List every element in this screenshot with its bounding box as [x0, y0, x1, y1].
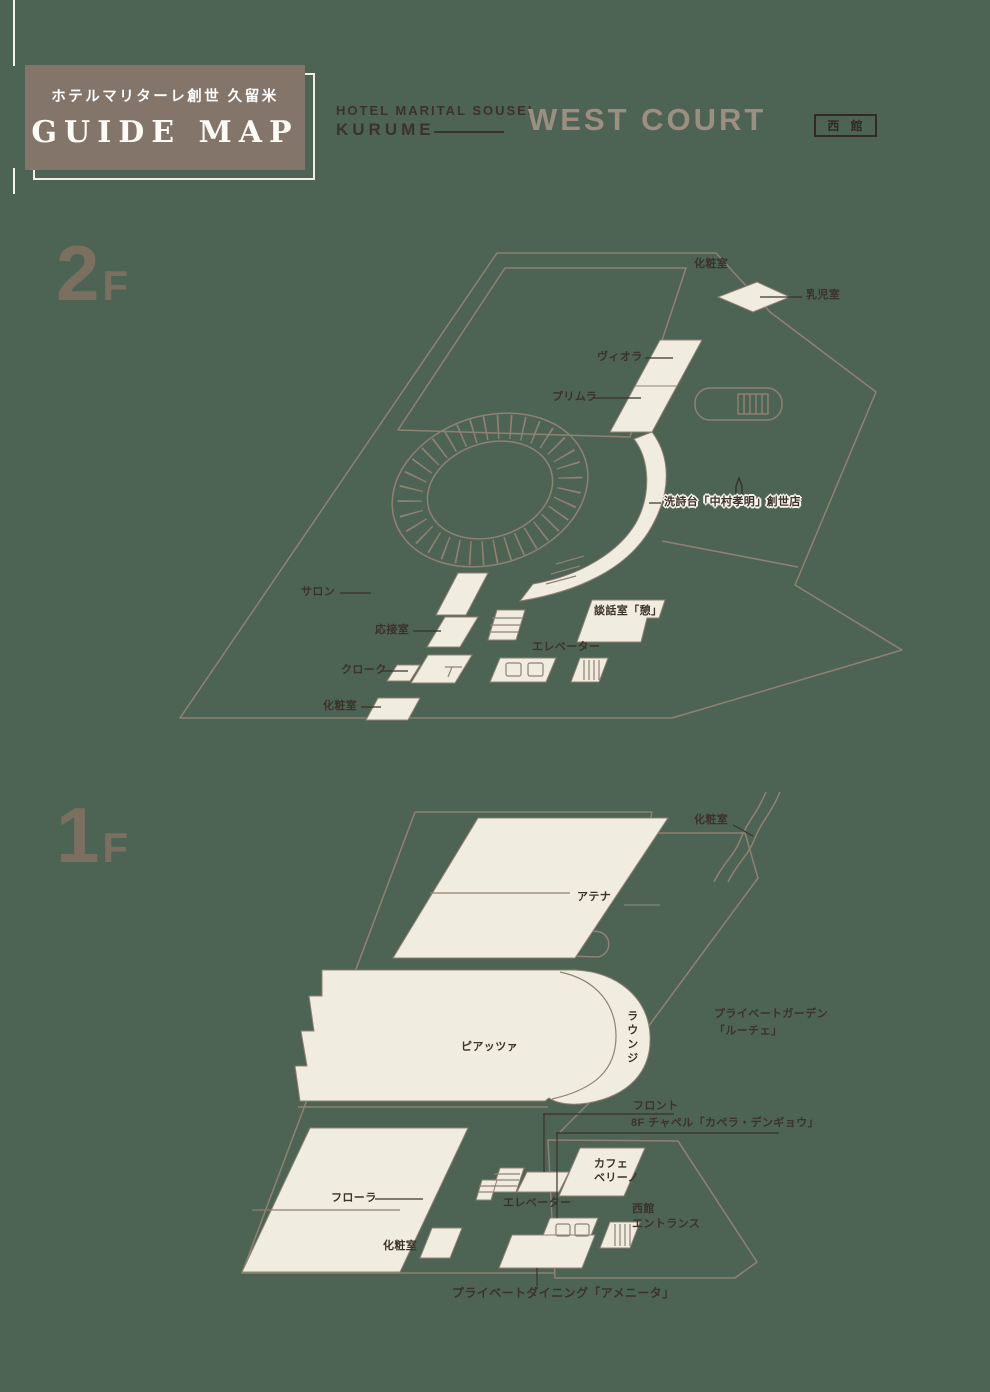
- label-2f-cloak: クローク: [341, 664, 387, 678]
- room-cloak-small: [387, 665, 420, 681]
- building-title: WEST COURT: [528, 102, 766, 138]
- room-elevator-2f: [490, 658, 556, 682]
- left-accent-line-top: [13, 0, 15, 66]
- room-private-dining: [499, 1235, 595, 1268]
- header-rule: [434, 131, 504, 133]
- room-cloak: [411, 655, 472, 683]
- hotel-name-en-line2: KURUME: [336, 120, 435, 140]
- label-1f-entrance-line2: エントランス: [632, 1218, 700, 1232]
- label-1f-piazza: ピアッツァ: [461, 1041, 518, 1055]
- label-2f-primula: プリムラ: [552, 391, 597, 405]
- spire-icon: [736, 478, 742, 498]
- room-stairs-2f: [571, 658, 608, 682]
- left-accent-line-bottom: [13, 168, 15, 194]
- label-2f-parlor: 談話室「憩」: [594, 605, 662, 619]
- room-elevator-1f: [538, 1218, 598, 1248]
- label-2f-salon: サロン: [301, 586, 335, 600]
- floor-1f-suffix: F: [102, 824, 128, 872]
- label-1f-cafe-line2: ベリーノ: [594, 1172, 639, 1186]
- room-athena: [393, 818, 668, 958]
- label-2f-restaurant: 洗詩台「中村孝明」創世店: [664, 496, 801, 510]
- label-2f-viola: ヴィオラ: [597, 351, 643, 365]
- label-1f-athena: アテナ: [577, 891, 611, 905]
- room-restroom-1f: [420, 1228, 462, 1258]
- label-2f-restroom-top: 化粧室: [694, 258, 728, 272]
- label-1f-flora: フローラ: [331, 1192, 377, 1206]
- room-primula: [610, 386, 677, 432]
- room-stairs-small-1f: [476, 1180, 497, 1200]
- label-1f-front: フロント: [633, 1100, 679, 1114]
- floor-2f-heading: 2 F: [56, 238, 128, 310]
- floor-1f-map: [0, 780, 990, 1340]
- label-1f-chapel: 8F チャペル「カペラ・デンギョウ」: [631, 1117, 819, 1131]
- room-viola: [635, 340, 702, 386]
- floor-2f-suffix: F: [102, 262, 128, 310]
- room-restaurant-crescent: [520, 432, 666, 601]
- room-piazza-lounge: [295, 970, 650, 1104]
- label-1f-garden-line2: 「ルーチェ」: [714, 1025, 782, 1039]
- label-2f-nursing-room: 乳児室: [806, 289, 840, 303]
- label-1f-elevator: エレベーター: [503, 1197, 571, 1211]
- label-2f-elevator: エレベーター: [532, 641, 600, 655]
- hotel-name-jp: ホテルマリターレ創世 久留米: [51, 85, 279, 106]
- label-1f-cafe-line1: カフェ: [594, 1158, 628, 1172]
- label-1f-garden-line1: プライベートガーデン: [714, 1008, 828, 1022]
- room-nursing: [718, 282, 790, 312]
- floor-2f-number: 2: [56, 238, 99, 308]
- label-1f-lounge: ラウンジ: [624, 1010, 638, 1066]
- label-1f-private-dining: プライベートダイニング「アメニータ」: [452, 1286, 675, 1301]
- room-stairs-upper-2f: [488, 610, 525, 640]
- floor-2f-map: [0, 220, 990, 790]
- guide-map-page: ホテルマリターレ創世 久留米 GUIDE MAP HOTEL MARITAL S…: [0, 0, 990, 1392]
- label-1f-restroom-top: 化粧室: [694, 814, 728, 828]
- label-1f-restroom-bottom: 化粧室: [383, 1240, 417, 1254]
- hotel-name-en-line1: HOTEL MARITAL SOUSEI: [336, 103, 533, 118]
- logo-box: ホテルマリターレ創世 久留米 GUIDE MAP: [25, 65, 305, 170]
- floor-1f-number: 1: [56, 800, 99, 870]
- west-building-badge: 西 館: [814, 114, 877, 137]
- floor-1f-heading: 1 F: [56, 800, 128, 872]
- guide-map-title: GUIDE MAP: [31, 115, 298, 150]
- room-stairs-1f: [492, 1168, 524, 1192]
- room-restroom-2f: [366, 698, 420, 720]
- label-2f-restroom-bottom: 化粧室: [323, 700, 357, 714]
- room-reception: [427, 617, 478, 647]
- room-front-desk: [517, 1172, 569, 1192]
- label-2f-reception: 応接室: [375, 624, 409, 638]
- label-1f-entrance-line1: 西館: [632, 1203, 655, 1217]
- room-salon: [436, 573, 488, 615]
